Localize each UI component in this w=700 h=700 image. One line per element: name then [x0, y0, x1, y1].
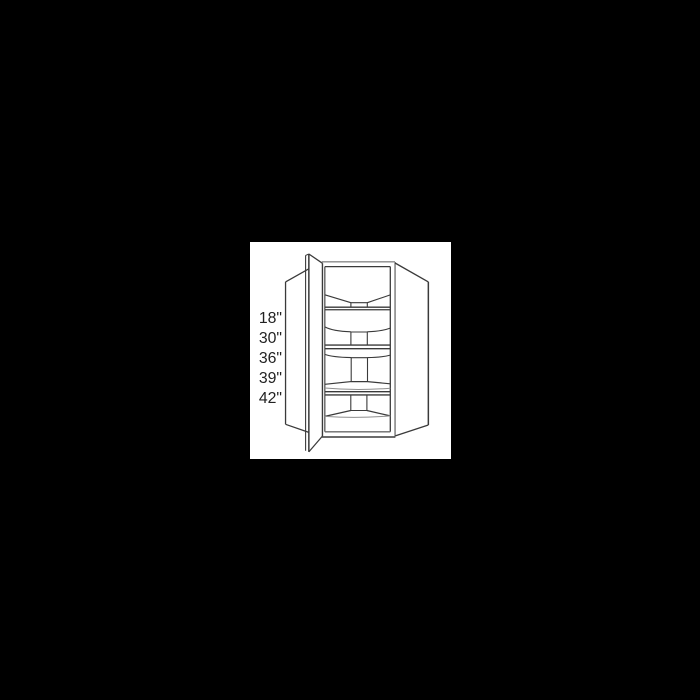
- svg-text:36": 36": [259, 350, 282, 367]
- svg-text:39": 39": [259, 370, 282, 387]
- svg-text:18": 18": [259, 310, 282, 327]
- svg-text:30": 30": [259, 330, 282, 347]
- svg-text:42": 42": [259, 390, 282, 407]
